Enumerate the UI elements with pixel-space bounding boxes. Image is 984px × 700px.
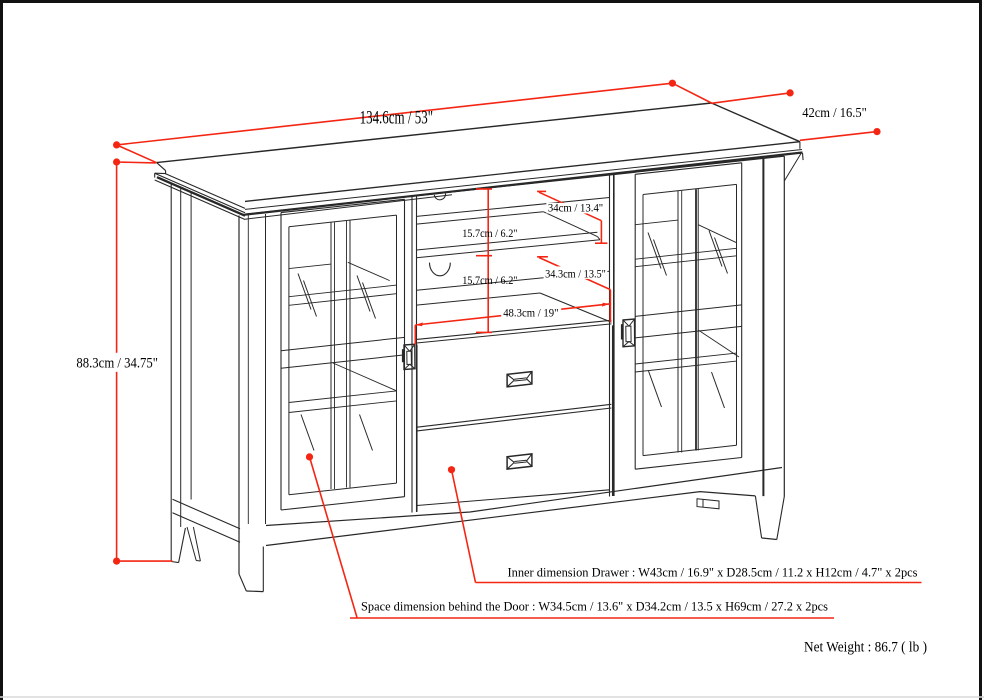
svg-text:42cm / 16.5": 42cm / 16.5"	[802, 106, 867, 121]
svg-text:34.3cm / 13.5": 34.3cm / 13.5"	[545, 269, 606, 281]
svg-text:Space dimension behind the Doo: Space dimension behind the Door : W34.5c…	[361, 600, 828, 614]
svg-text:48.3cm / 19": 48.3cm / 19"	[503, 308, 558, 320]
svg-text:134.6cm / 53": 134.6cm / 53"	[360, 107, 433, 128]
svg-text:15.7cm / 6.2": 15.7cm / 6.2"	[462, 228, 517, 240]
svg-text:34cm / 13.4": 34cm / 13.4"	[548, 203, 603, 215]
svg-text:88.3cm / 34.75": 88.3cm / 34.75"	[76, 356, 158, 372]
svg-text:Inner dimension Drawer : W43cm: Inner dimension Drawer : W43cm / 16.9" x…	[508, 566, 918, 580]
svg-text:Net Weight : 86.7 ( lb ): Net Weight : 86.7 ( lb )	[804, 640, 927, 656]
svg-text:15.7cm / 6.2": 15.7cm / 6.2"	[462, 275, 517, 287]
